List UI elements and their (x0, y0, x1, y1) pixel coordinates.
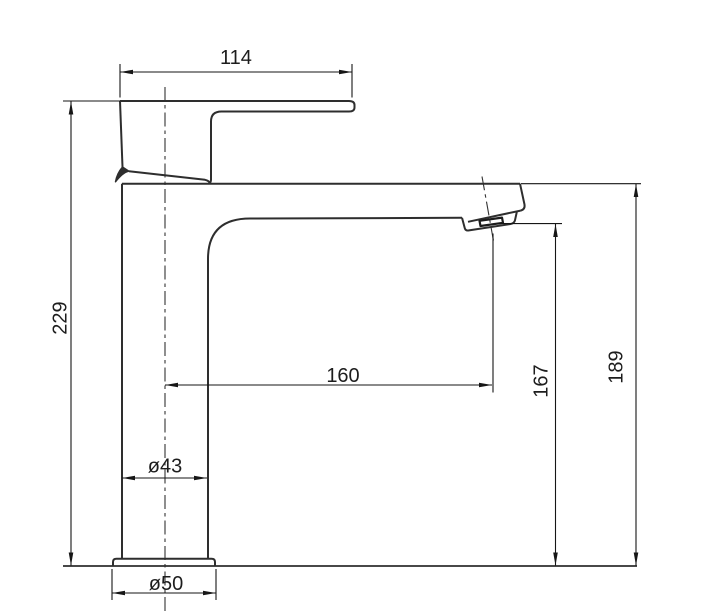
base-plate (113, 559, 215, 566)
dimension-229: 229 (50, 101, 121, 566)
dim-229-arrow-bottom (69, 553, 74, 566)
dim-50-arrow-left (112, 591, 125, 596)
dim-label-50: ø50 (149, 573, 183, 595)
centerlines (165, 87, 494, 612)
handle-lip (116, 167, 130, 182)
handle-left-edge (120, 101, 123, 167)
faucet-outline (63, 101, 637, 566)
dim-50-arrow-right (203, 591, 216, 596)
dimension-167: 167 (497, 224, 562, 566)
spout-underside (208, 218, 462, 559)
dim-label-43: ø43 (148, 456, 182, 478)
handle-base-bottom (129, 171, 211, 184)
dim-43-arrow-right (194, 476, 207, 481)
dim-160-arrow-right (479, 383, 492, 388)
dimension-43: ø43 (122, 456, 207, 481)
spout-cut-face (468, 211, 521, 222)
dim-114-arrow-right (339, 70, 352, 75)
dim-189-arrow-bottom (634, 553, 639, 566)
dim-114-arrow-left (120, 70, 133, 75)
dim-189-arrow-top (634, 184, 639, 197)
technical-drawing-canvas: 114 229 160 167 (0, 0, 703, 615)
dim-160-arrow-left (165, 383, 178, 388)
dimension-160: 160 (165, 234, 493, 393)
dimension-114: 114 (120, 47, 352, 98)
spout-tip-right-face (520, 184, 525, 211)
dimension-50: ø50 (112, 569, 216, 600)
dim-label-189: 189 (606, 350, 628, 383)
dim-label-167: 167 (531, 364, 553, 397)
dim-label-229: 229 (50, 301, 72, 334)
faucet-dimension-drawing: 114 229 160 167 (0, 0, 703, 615)
dim-229-arrow-top (69, 102, 74, 115)
handle-lever-outline (120, 101, 355, 184)
dim-167-arrow-top (553, 224, 558, 237)
dim-167-arrow-bottom (553, 553, 558, 566)
dim-43-arrow-left (122, 476, 135, 481)
dim-label-114: 114 (220, 47, 252, 69)
dim-label-160: 160 (326, 365, 359, 387)
aerator-axis-centerline (482, 177, 494, 242)
